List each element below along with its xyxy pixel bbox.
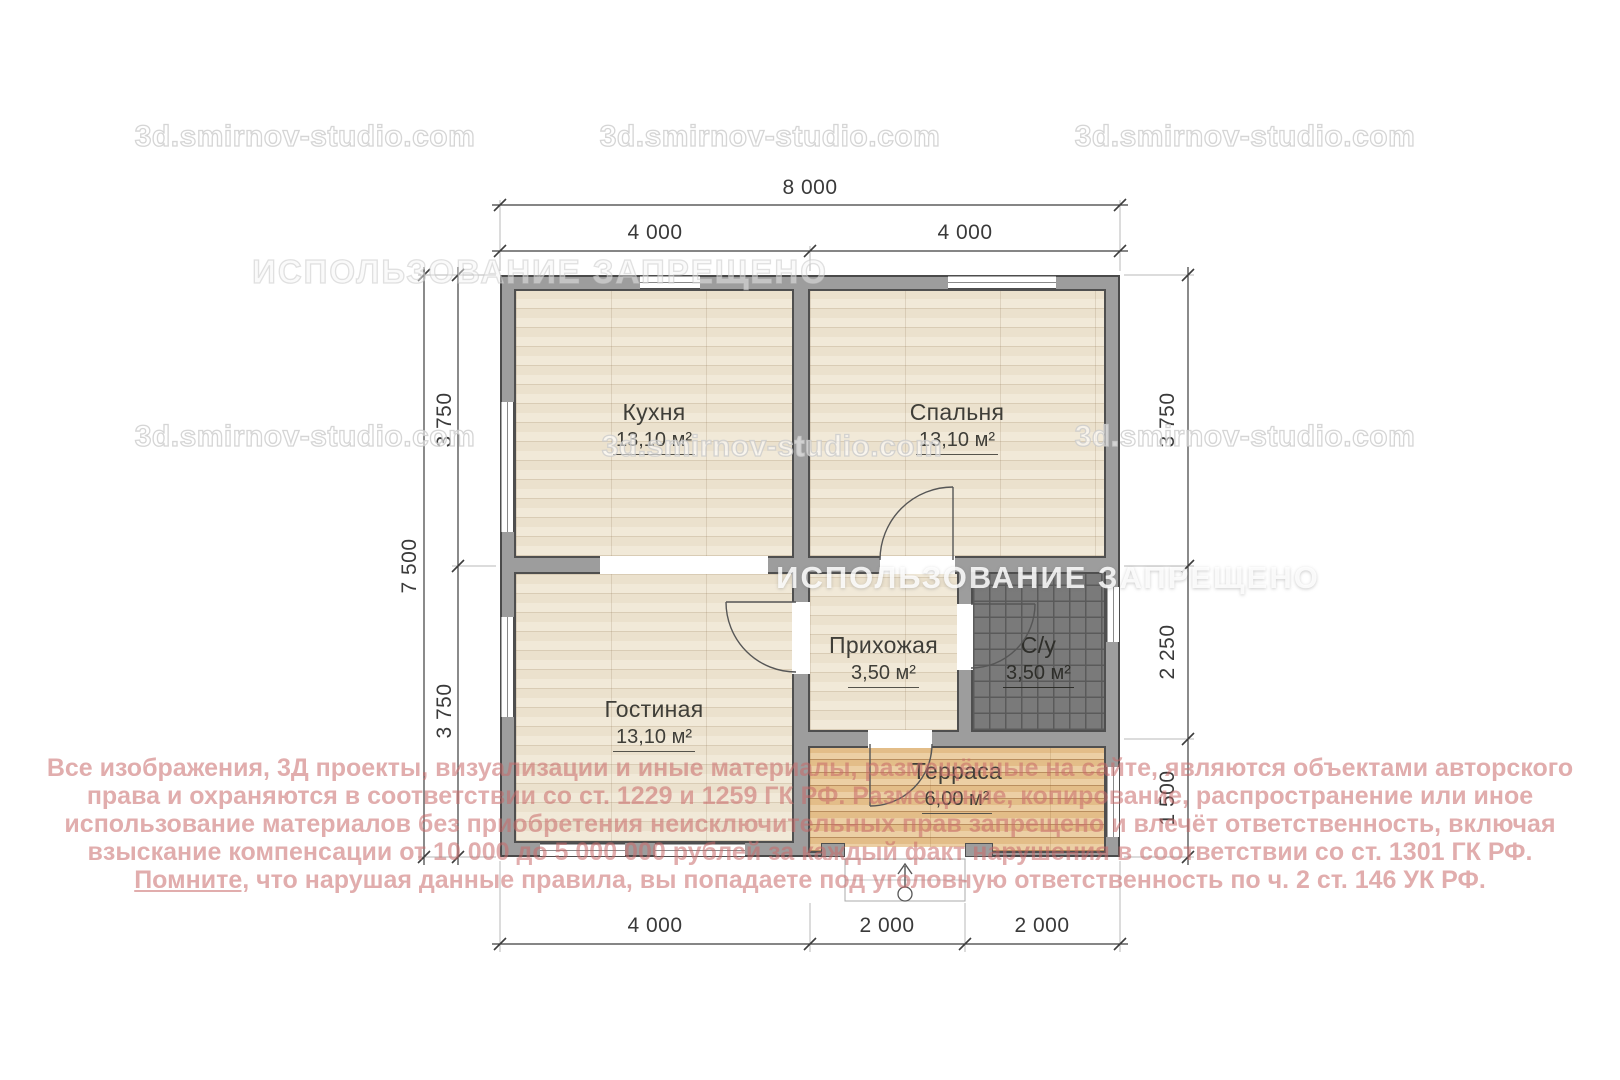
watermark-site-4: 3d.smirnov-studio.com bbox=[135, 420, 476, 454]
door-opening-terrace bbox=[868, 730, 932, 748]
room-area: 13,10 м² bbox=[613, 726, 695, 752]
room-label-hallway: Прихожая 3,50 м² bbox=[810, 632, 957, 688]
floor-plan: Кухня 13,10 м² Спальня 13,10 м² Гостиная… bbox=[500, 275, 1120, 857]
legal-line-5-underlined: Помните, bbox=[134, 866, 249, 894]
dim-bottom-seg1: 4 000 bbox=[627, 914, 682, 938]
dim-left-total: 7 500 bbox=[398, 538, 422, 593]
watermark-site-1: 3d.smirnov-studio.com bbox=[135, 120, 476, 154]
watermark-site-3: 3d.smirnov-studio.com bbox=[1075, 120, 1416, 154]
room-name: С/у bbox=[973, 632, 1104, 659]
room-bathroom: С/у 3,50 м² bbox=[971, 572, 1106, 732]
dim-bottom-seg2: 2 000 bbox=[859, 914, 914, 938]
window-bottom-living-2 bbox=[655, 843, 745, 857]
room-name: Кухня bbox=[516, 399, 792, 426]
room-bedroom: Спальня 13,10 м² bbox=[808, 289, 1106, 558]
door-opening-bedroom bbox=[880, 556, 955, 574]
wall-stub-left-of-entrance bbox=[821, 843, 845, 857]
room-living: Гостиная 13,10 м² bbox=[514, 572, 794, 843]
room-name: Спальня bbox=[810, 399, 1104, 426]
room-area: 6,00 м² bbox=[922, 788, 993, 814]
room-name: Терраса bbox=[810, 758, 1104, 785]
entry-marker-icon bbox=[898, 887, 912, 901]
legal-line-5: Помните, что нарушая данные правила, вы … bbox=[0, 866, 1620, 894]
dim-left-seg1: 3 750 bbox=[433, 392, 457, 447]
dim-top-seg2: 4 000 bbox=[937, 221, 992, 245]
room-area: 3,50 м² bbox=[848, 662, 919, 688]
entry-arrow-icon bbox=[898, 864, 912, 898]
room-kitchen: Кухня 13,10 м² bbox=[514, 289, 794, 558]
room-name: Гостиная bbox=[516, 696, 792, 723]
dim-right-seg1: 3 750 bbox=[1156, 392, 1180, 447]
window-bottom-living-1 bbox=[540, 843, 625, 857]
dim-right-seg3: 1 500 bbox=[1156, 770, 1180, 825]
room-label-terrace: Терраса 6,00 м² bbox=[810, 758, 1104, 814]
room-hallway: Прихожая 3,50 м² bbox=[808, 572, 959, 732]
dim-left-seg2: 3 750 bbox=[433, 683, 457, 738]
dim-bottom-seg3: 2 000 bbox=[1014, 914, 1069, 938]
watermark-site-2: 3d.smirnov-studio.com bbox=[600, 120, 941, 154]
dim-right-seg2: 2 250 bbox=[1156, 624, 1180, 679]
room-area: 13,10 м² bbox=[613, 429, 695, 455]
window-right-bathroom bbox=[1106, 587, 1120, 642]
dim-top-seg1: 4 000 bbox=[627, 221, 682, 245]
entry-steps bbox=[845, 859, 965, 901]
room-label-bathroom: С/у 3,50 м² bbox=[973, 632, 1104, 688]
dim-top-total: 8 000 bbox=[782, 176, 837, 200]
window-right-terrace bbox=[1106, 767, 1120, 837]
window-top-kitchen bbox=[640, 275, 700, 289]
room-name: Прихожая bbox=[810, 632, 957, 659]
door-opening-bathroom bbox=[957, 604, 973, 670]
wall-stub-right-of-entrance bbox=[965, 843, 993, 857]
room-area: 3,50 м² bbox=[1003, 662, 1074, 688]
door-opening-living bbox=[792, 602, 810, 674]
window-left-living bbox=[500, 617, 514, 717]
room-label-bedroom: Спальня 13,10 м² bbox=[810, 399, 1104, 455]
room-label-kitchen: Кухня 13,10 м² bbox=[516, 399, 792, 455]
room-area: 13,10 м² bbox=[916, 429, 998, 455]
watermark-site-6: 3d.smirnov-studio.com bbox=[1075, 420, 1416, 454]
room-terrace: Терраса 6,00 м² bbox=[808, 746, 1106, 853]
room-label-living: Гостиная 13,10 м² bbox=[516, 696, 792, 752]
window-top-bedroom bbox=[948, 275, 1056, 289]
floor-plan-page: { "watermark": { "site": "3d.smirnov-stu… bbox=[0, 0, 1620, 1080]
legal-line-5-rest: что нарушая данные правила, вы попадаете… bbox=[256, 866, 1486, 894]
entrance-opening bbox=[845, 847, 965, 857]
opening-kitchen-living bbox=[600, 556, 768, 574]
window-left-kitchen bbox=[500, 402, 514, 532]
